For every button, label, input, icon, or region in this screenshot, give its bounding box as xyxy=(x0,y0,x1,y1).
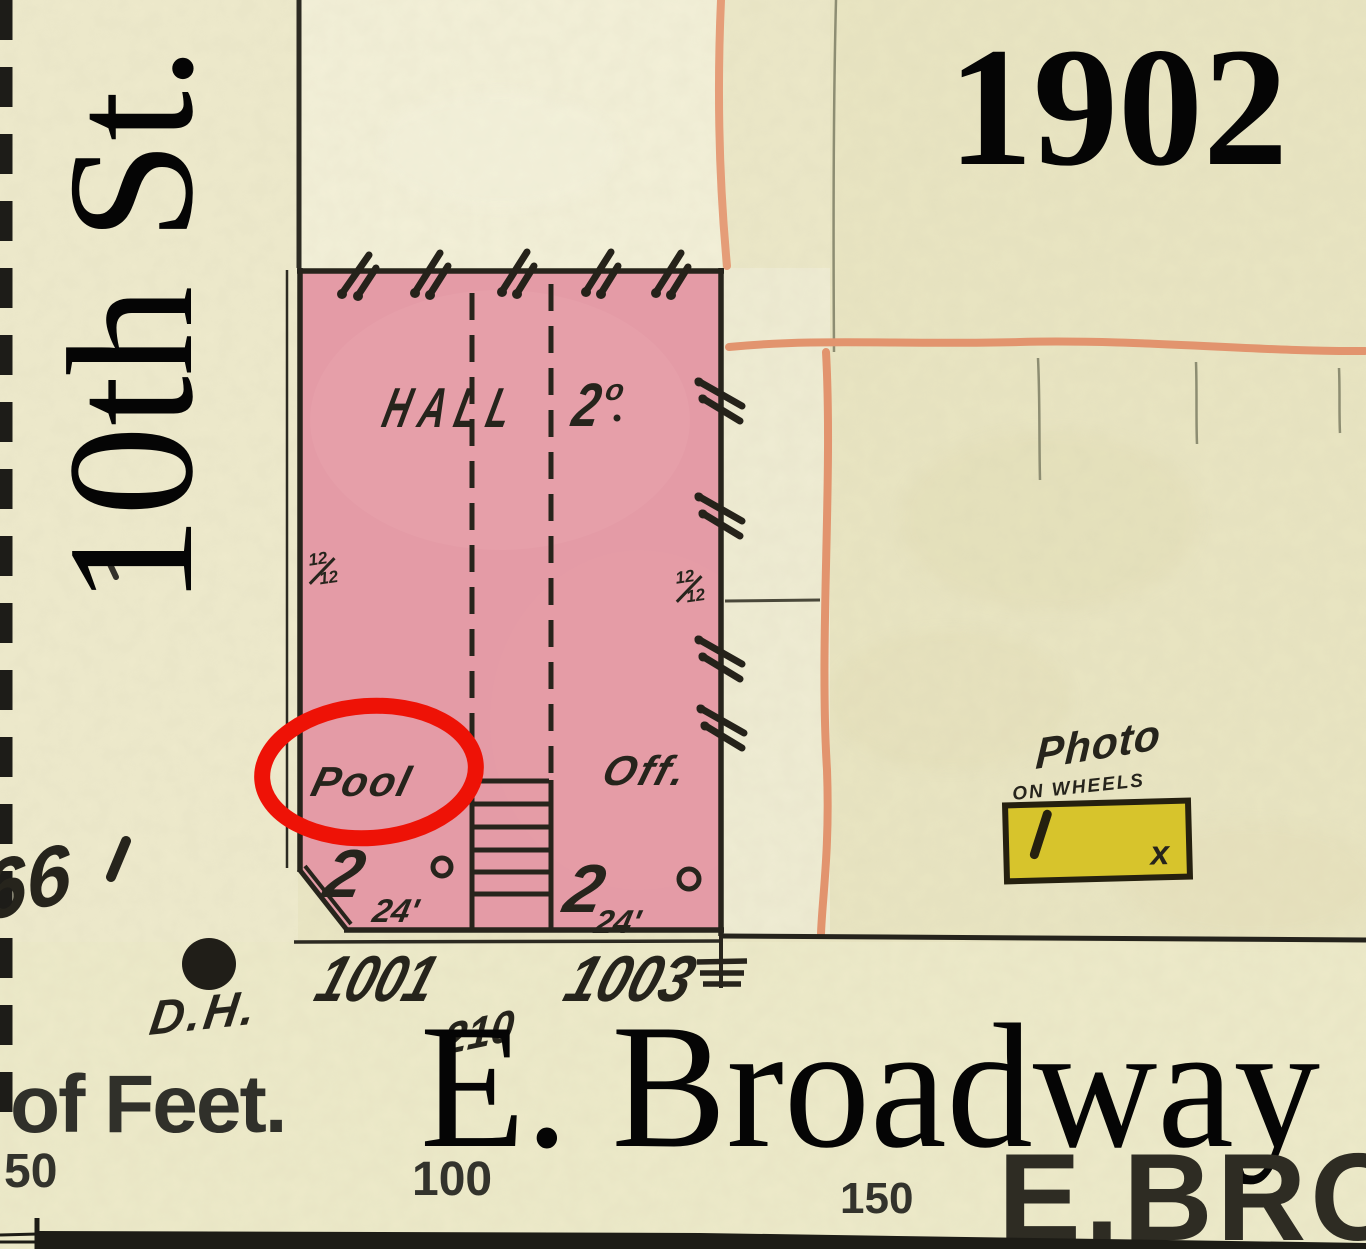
svg-text:Pool: Pool xyxy=(307,759,418,806)
svg-text:Off.: Off. xyxy=(597,748,694,795)
svg-text:HALL: HALL xyxy=(377,377,528,440)
svg-text:50: 50 xyxy=(4,1145,57,1198)
svg-text:100: 100 xyxy=(412,1153,492,1206)
svg-text:1902: 1902 xyxy=(948,13,1288,201)
svg-text:24': 24' xyxy=(590,904,644,941)
svg-text:24': 24' xyxy=(368,893,422,930)
svg-text:x: x xyxy=(1148,834,1172,873)
svg-text:150: 150 xyxy=(840,1174,913,1223)
svg-text:of Feet.: of Feet. xyxy=(10,1059,286,1150)
svg-text:10th St.: 10th St. xyxy=(31,46,230,606)
svg-text:E.BROADWAY: E.BROADWAY xyxy=(998,1129,1366,1249)
